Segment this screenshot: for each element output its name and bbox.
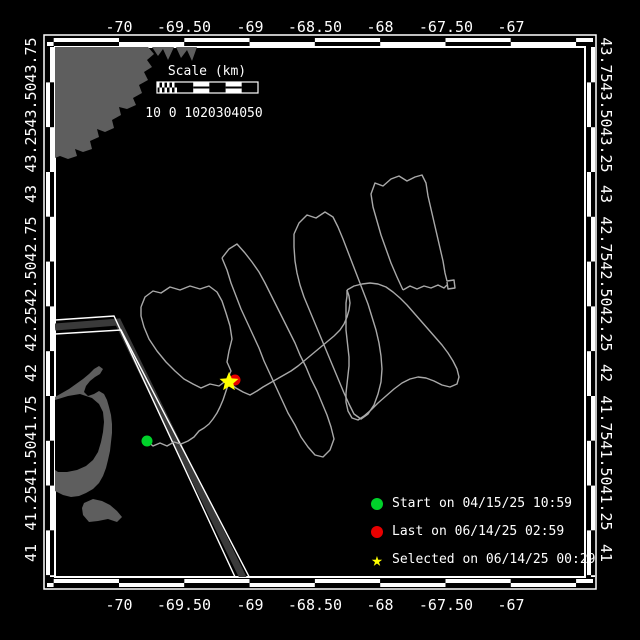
glider-track[interactable] [371, 175, 455, 290]
lat-label-left: 41.50 [22, 440, 40, 485]
lat-label-left: 43.75 [22, 37, 40, 82]
scale-bar: Scale (km)10 0 1020304050 [145, 64, 262, 121]
legend-item-selected: ★ Selected on 06/14/25 00:29 [362, 550, 596, 569]
lat-label-left: 41.75 [22, 395, 40, 440]
lon-label-bottom: -68 [366, 596, 393, 614]
glider-track[interactable] [346, 283, 459, 420]
legend: Start on 04/15/25 10:59 Last on 06/14/25… [362, 494, 596, 569]
lat-label-left: 43.50 [22, 82, 40, 127]
lon-label-top: -67.50 [419, 18, 473, 36]
lat-label-right: 43.25 [597, 127, 615, 172]
lon-label-top: -67 [497, 18, 524, 36]
legend-selected-label: Selected on 06/14/25 00:29 [392, 552, 596, 567]
lon-label-top: -70 [105, 18, 132, 36]
lon-label-bottom: -67.50 [419, 596, 473, 614]
lon-label-bottom: -69.50 [157, 596, 211, 614]
yellow-star-icon: ★ [371, 554, 382, 566]
green-dot-icon [371, 498, 383, 510]
glider-track[interactable] [294, 212, 382, 419]
red-dot-icon [371, 526, 383, 538]
lon-label-bottom: -69 [236, 596, 263, 614]
lat-label-left: 43 [22, 185, 40, 203]
glider-track[interactable] [403, 285, 447, 290]
lat-label-right: 43.75 [597, 37, 615, 82]
lat-label-right: 42.50 [597, 261, 615, 306]
landmass [55, 47, 154, 159]
lon-label-top: -68.50 [288, 18, 342, 36]
lat-label-left: 43.25 [22, 127, 40, 172]
legend-last-label: Last on 06/14/25 02:59 [392, 524, 564, 539]
lat-label-right: 41.75 [597, 395, 615, 440]
lon-label-bottom: -68.50 [288, 596, 342, 614]
lat-label-left: 42.75 [22, 216, 40, 261]
landmass [176, 47, 197, 61]
start-position-marker[interactable] [142, 436, 153, 447]
lat-label-left: 41 [22, 544, 40, 562]
landmass [82, 499, 122, 522]
lat-label-right: 42.75 [597, 216, 615, 261]
lat-label-right: 41.50 [597, 440, 615, 485]
selected-marker-icon: ★ [362, 554, 392, 566]
map-window: Scale (km)10 0 1020304050 -70-70-69.50-6… [0, 0, 640, 640]
legend-start-label: Start on 04/15/25 10:59 [392, 496, 572, 511]
lon-label-top: -69 [236, 18, 263, 36]
lat-label-right: 42 [597, 364, 615, 382]
last-marker-icon [362, 526, 392, 538]
lat-label-left: 42.50 [22, 261, 40, 306]
legend-item-start: Start on 04/15/25 10:59 [362, 494, 596, 513]
lat-label-right: 43.50 [597, 82, 615, 127]
scale-bar-title: Scale (km) [168, 64, 246, 79]
lat-label-left: 42.25 [22, 306, 40, 351]
lat-label-right: 42.25 [597, 306, 615, 351]
lon-label-top: -68 [366, 18, 393, 36]
lat-label-left: 41.25 [22, 485, 40, 530]
landmass [152, 47, 174, 60]
lat-label-left: 42 [22, 364, 40, 382]
lon-label-bottom: -70 [105, 596, 132, 614]
glider-track[interactable] [141, 286, 232, 388]
lon-label-top: -69.50 [157, 18, 211, 36]
lat-label-right: 41.25 [597, 485, 615, 530]
legend-item-last: Last on 06/14/25 02:59 [362, 522, 596, 541]
scale-bar-numbers: 10 0 1020304050 [145, 106, 262, 121]
lat-label-right: 41 [597, 544, 615, 562]
lat-label-right: 43 [597, 185, 615, 203]
start-marker-icon [362, 498, 392, 510]
lon-label-bottom: -67 [497, 596, 524, 614]
glider-track[interactable] [229, 290, 350, 395]
